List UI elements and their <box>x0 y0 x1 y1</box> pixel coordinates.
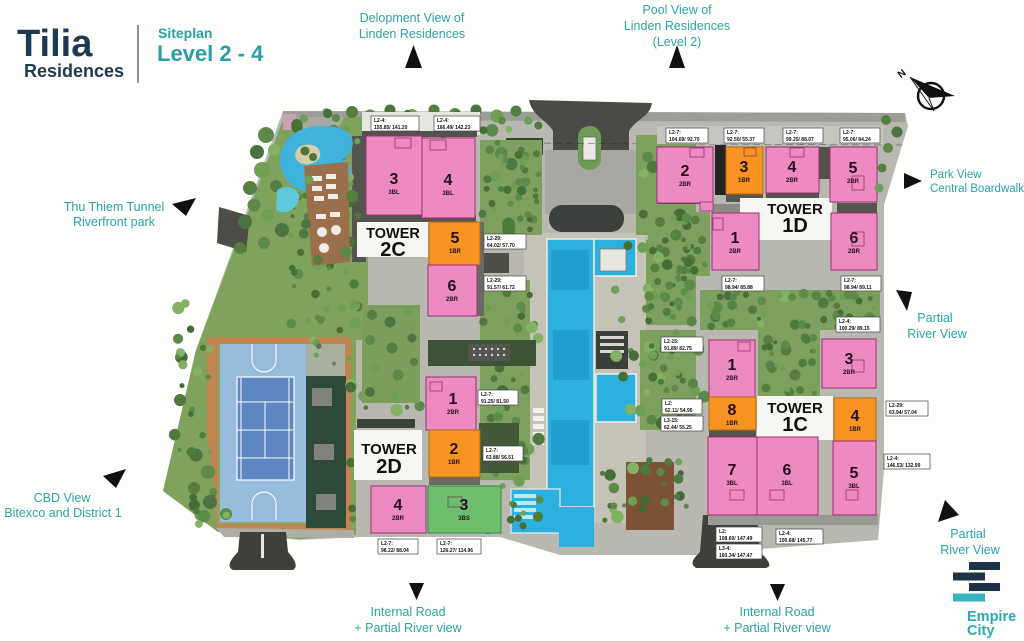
svg-text:4: 4 <box>444 172 453 189</box>
svg-text:2BR: 2BR <box>786 178 799 184</box>
svg-text:1: 1 <box>731 230 740 247</box>
svg-text:5: 5 <box>451 230 460 247</box>
svg-text:L2-4:: L2-4: <box>887 456 899 462</box>
svg-text:126.27/ 114.96: 126.27/ 114.96 <box>440 548 473 554</box>
svg-text:L2-7:: L2-7: <box>481 392 493 398</box>
svg-text:L2-4:: L2-4: <box>437 118 449 124</box>
svg-text:99.25/ 88.07: 99.25/ 88.07 <box>786 137 814 143</box>
svg-text:Central Boardwalk: Central Boardwalk <box>930 183 1024 195</box>
svg-text:91.57/ 61.72: 91.57/ 61.72 <box>487 285 515 291</box>
svg-text:3BL: 3BL <box>388 190 400 196</box>
svg-text:2BR: 2BR <box>729 249 742 255</box>
svg-text:6: 6 <box>448 278 457 295</box>
svg-text:L2:: L2: <box>665 401 673 407</box>
svg-text:L2-7:: L2-7: <box>381 541 393 547</box>
svg-text:L2:: L2: <box>719 529 727 535</box>
svg-text:L2-7:: L2-7: <box>786 130 798 136</box>
svg-text:+ Partial River view: + Partial River view <box>354 621 462 635</box>
svg-text:L2-29:: L2-29: <box>487 236 502 242</box>
svg-text:2BR: 2BR <box>848 249 861 255</box>
svg-text:L2-4:: L2-4: <box>839 319 851 325</box>
svg-text:Bitexco and District 1: Bitexco and District 1 <box>4 506 121 520</box>
svg-text:2C: 2C <box>380 239 406 261</box>
svg-text:1C: 1C <box>782 414 808 436</box>
svg-text:(Level 2): (Level 2) <box>653 35 702 49</box>
svg-text:92.50/ 55.37: 92.50/ 55.37 <box>727 137 755 143</box>
svg-text:City: City <box>967 623 994 639</box>
svg-text:2: 2 <box>450 441 459 458</box>
svg-text:L2-7:: L2-7: <box>669 130 681 136</box>
svg-text:Partial: Partial <box>950 527 985 541</box>
svg-text:1BR: 1BR <box>738 178 751 184</box>
svg-text:3: 3 <box>740 159 749 176</box>
svg-text:6: 6 <box>850 230 859 247</box>
svg-text:Pool View of: Pool View of <box>642 3 712 17</box>
svg-text:L2-15:: L2-15: <box>664 339 679 345</box>
svg-text:62.44/ 55.25: 62.44/ 55.25 <box>664 425 692 431</box>
svg-text:91.89/ 82.75: 91.89/ 82.75 <box>664 346 692 352</box>
svg-text:3: 3 <box>460 497 469 514</box>
svg-text:5: 5 <box>849 160 858 177</box>
svg-text:95.06/ 84.24: 95.06/ 84.24 <box>843 137 871 143</box>
svg-text:98.94/ 85.88: 98.94/ 85.88 <box>725 285 753 291</box>
svg-text:64.02/ 57.70: 64.02/ 57.70 <box>487 243 515 249</box>
svg-text:1BR: 1BR <box>448 460 461 466</box>
svg-text:Riverfront park: Riverfront park <box>73 215 156 229</box>
svg-text:L2-29:: L2-29: <box>889 403 904 409</box>
svg-text:4: 4 <box>851 408 860 425</box>
svg-text:63.88/ 56.51: 63.88/ 56.51 <box>486 455 514 461</box>
svg-text:4: 4 <box>788 159 797 176</box>
svg-text:3BL: 3BL <box>848 484 860 490</box>
svg-text:4: 4 <box>394 497 403 514</box>
svg-text:160.34/ 147.47: 160.34/ 147.47 <box>719 553 753 559</box>
svg-text:L2-7:: L2-7: <box>440 541 452 547</box>
svg-text:104.69/ 92.70: 104.69/ 92.70 <box>669 137 700 143</box>
svg-text:2: 2 <box>681 163 690 180</box>
svg-text:2BR: 2BR <box>447 410 460 416</box>
svg-text:Delopment View of: Delopment View of <box>360 11 465 25</box>
svg-text:L2-7:: L2-7: <box>727 130 739 136</box>
svg-text:1D: 1D <box>782 215 808 237</box>
svg-text:8: 8 <box>728 402 737 419</box>
svg-text:98.94/ 89.11: 98.94/ 89.11 <box>844 285 872 291</box>
svg-text:6: 6 <box>783 462 792 479</box>
svg-text:155.85/ 141.20: 155.85/ 141.20 <box>374 125 408 131</box>
svg-text:River View: River View <box>940 543 1000 557</box>
svg-text:+ Partial River view: + Partial River view <box>723 621 831 635</box>
svg-text:7: 7 <box>728 462 737 479</box>
svg-text:100.68/ 145.77: 100.68/ 145.77 <box>779 538 813 544</box>
svg-text:63.94/ 57.04: 63.94/ 57.04 <box>889 410 917 416</box>
svg-text:L2-7:: L2-7: <box>843 130 855 136</box>
svg-text:CBD View: CBD View <box>34 491 92 505</box>
svg-text:2D: 2D <box>376 456 402 478</box>
svg-text:1: 1 <box>728 357 737 374</box>
svg-text:2BR: 2BR <box>847 179 860 185</box>
svg-text:River View: River View <box>907 327 967 341</box>
svg-text:2BR: 2BR <box>446 297 459 303</box>
svg-text:Internal Road: Internal Road <box>370 605 445 619</box>
svg-text:Partial: Partial <box>917 311 952 325</box>
svg-text:2BR: 2BR <box>392 516 405 522</box>
svg-text:L2-7:: L2-7: <box>844 278 856 284</box>
svg-text:91.25/ 81.50: 91.25/ 81.50 <box>481 399 509 405</box>
svg-text:3BL: 3BL <box>781 481 793 487</box>
svg-text:2BR: 2BR <box>679 182 692 188</box>
svg-text:Park View: Park View <box>930 169 982 181</box>
svg-text:3BL: 3BL <box>442 191 454 197</box>
svg-text:98.22/ 88.04: 98.22/ 88.04 <box>381 548 409 554</box>
svg-text:146.53/ 132.99: 146.53/ 132.99 <box>887 463 921 469</box>
svg-text:1BR: 1BR <box>849 427 862 433</box>
svg-text:Thu Thiem Tunnel: Thu Thiem Tunnel <box>64 200 165 214</box>
svg-text:3BL: 3BL <box>726 481 738 487</box>
svg-text:L2-7:: L2-7: <box>725 278 737 284</box>
svg-text:1: 1 <box>449 391 458 408</box>
svg-text:2BR: 2BR <box>726 376 739 382</box>
svg-text:108.60/ 147.49: 108.60/ 147.49 <box>719 536 753 542</box>
svg-text:L2-29:: L2-29: <box>487 278 502 284</box>
svg-text:L3-15:: L3-15: <box>664 418 679 424</box>
svg-text:L2-4:: L2-4: <box>779 531 791 537</box>
svg-text:L2-7:: L2-7: <box>486 448 498 454</box>
svg-text:2BR: 2BR <box>843 370 856 376</box>
svg-text:L2-4:: L2-4: <box>374 118 386 124</box>
svg-text:1BR: 1BR <box>449 249 462 255</box>
svg-text:3BS: 3BS <box>458 516 470 522</box>
svg-text:Internal Road: Internal Road <box>739 605 814 619</box>
svg-text:Linden Residences: Linden Residences <box>624 19 730 33</box>
svg-text:166.49/ 142.23: 166.49/ 142.23 <box>437 125 471 131</box>
svg-text:Linden Residences: Linden Residences <box>359 27 465 41</box>
svg-text:100.29/ 89.15: 100.29/ 89.15 <box>839 326 870 332</box>
svg-text:5: 5 <box>850 465 859 482</box>
svg-text:L3-4:: L3-4: <box>719 546 731 552</box>
svg-text:62.11/ 54.95: 62.11/ 54.95 <box>665 408 693 414</box>
svg-text:3: 3 <box>390 171 399 188</box>
svg-text:1BR: 1BR <box>726 421 739 427</box>
